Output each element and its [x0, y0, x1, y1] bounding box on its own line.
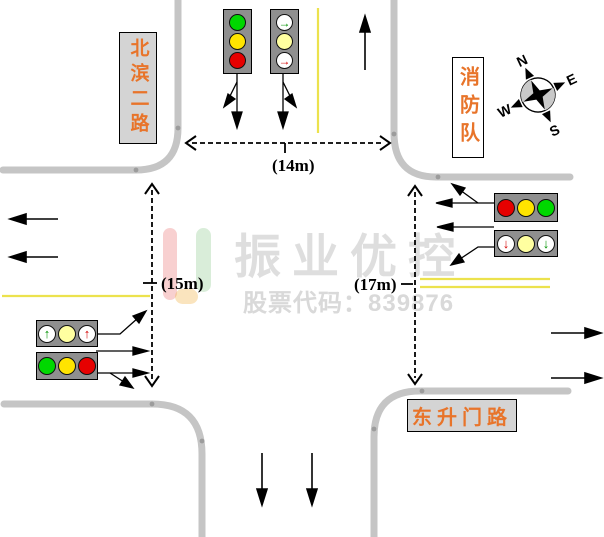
compass-south-label: S — [547, 121, 562, 139]
lamp-green-circle — [537, 199, 555, 217]
dimension-label-east: (17m) — [354, 275, 396, 295]
traffic-light-west-straight — [36, 352, 98, 380]
lamp-yellow-circle — [517, 199, 535, 217]
signal-pointer-arrows-north — [224, 73, 296, 128]
lamp-red-circle — [78, 357, 96, 375]
lamp-green-arrow-right: → — [276, 14, 293, 31]
road-edges — [3, 0, 570, 537]
compass-east-label: E — [564, 70, 579, 88]
signal-pointer-arrows-west — [96, 311, 148, 388]
lamp-yellow-circle — [58, 357, 76, 375]
lamp-green-circle — [229, 14, 246, 31]
lamp-red-circle — [229, 52, 246, 69]
compass-rose: N E S W — [479, 36, 596, 156]
lamp-green-arrow-down: ↓ — [537, 235, 555, 253]
sign-east-road-name: 东升门路 — [407, 399, 517, 432]
traffic-light-west-turn: ↑↑ — [36, 320, 98, 347]
signal-pointer-arrows-east — [436, 184, 494, 265]
traffic-light-north-turn: →→ — [270, 9, 299, 74]
road-network-drawing: N E S W — [0, 0, 604, 537]
intersection-diagram: 振业优控 股票代码：839876 — [0, 0, 604, 537]
lamp-green-arrow-up: ↑ — [38, 325, 56, 343]
sign-fire-station: 消防队 — [452, 57, 484, 158]
compass-west-label: W — [495, 100, 514, 120]
compass-north-label: N — [514, 51, 530, 70]
lamp-green-circle — [38, 357, 56, 375]
lamp-red-arrow-right: → — [276, 52, 293, 69]
lamp-red-arrow-up: ↑ — [78, 325, 96, 343]
lamp-yellow-pale — [517, 235, 535, 253]
lamp-red-circle — [497, 199, 515, 217]
traffic-light-north-straight — [223, 9, 252, 74]
dimension-label-north: (14m) — [272, 156, 314, 176]
lamp-yellow-pale — [58, 325, 76, 343]
lamp-red-arrow-down: ↓ — [497, 235, 515, 253]
dimension-label-west: (15m) — [161, 274, 203, 294]
lamp-yellow-pale — [276, 33, 293, 50]
traffic-light-east-turn: ↓↓ — [494, 230, 558, 257]
traffic-light-east-straight — [494, 193, 558, 222]
lamp-yellow-circle — [229, 33, 246, 50]
sign-north-road-name: 北滨二路 — [119, 32, 157, 144]
